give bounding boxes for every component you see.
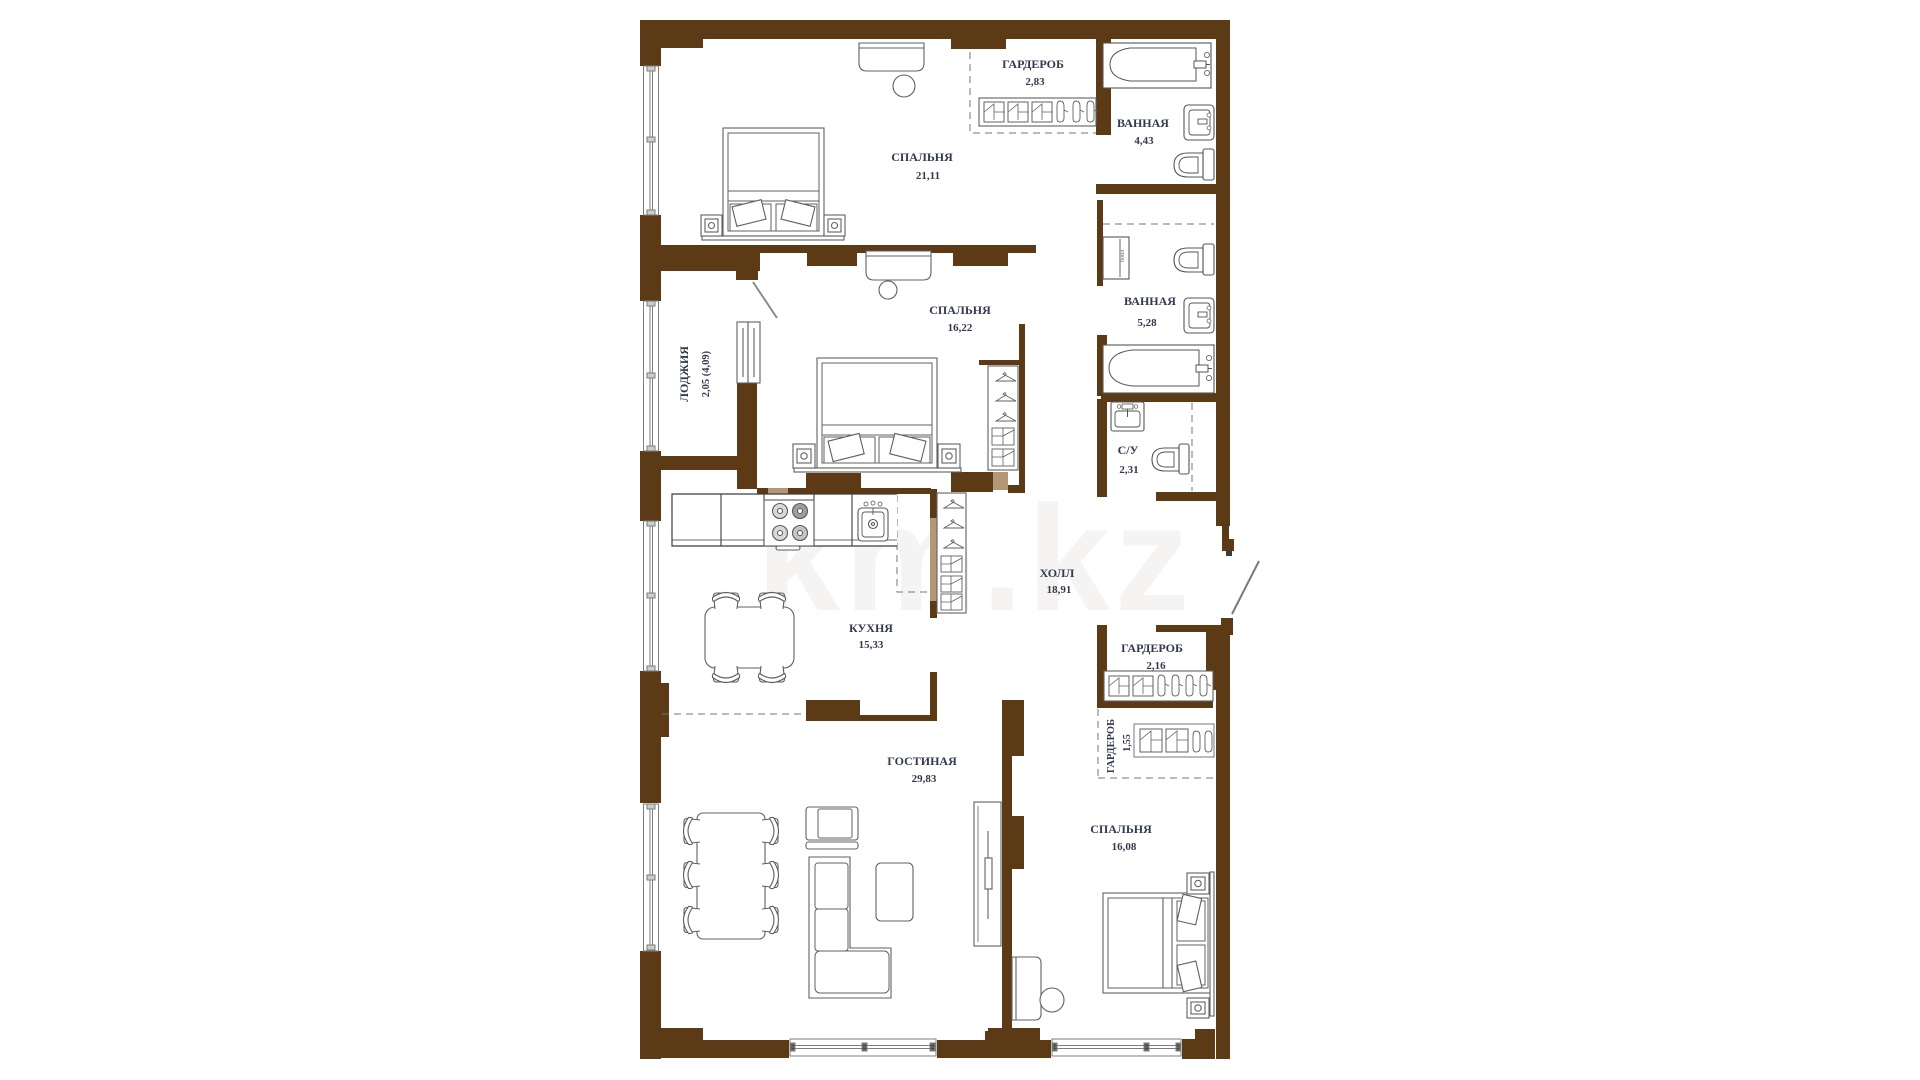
svg-text:16,22: 16,22 — [948, 322, 973, 334]
svg-text:С/У: С/У — [1118, 443, 1139, 457]
svg-text:16,08: 16,08 — [1112, 841, 1137, 853]
svg-text:ЛОДЖИЯ: ЛОДЖИЯ — [677, 346, 691, 402]
svg-text:ВАННАЯ: ВАННАЯ — [1124, 294, 1176, 308]
svg-text:1,55: 1,55 — [1122, 734, 1133, 752]
svg-text:5,28: 5,28 — [1137, 317, 1157, 329]
svg-text:4,43: 4,43 — [1134, 135, 1154, 147]
svg-text:ГАРДЕРОБ: ГАРДЕРОБ — [1002, 57, 1064, 71]
svg-text:КУХНЯ: КУХНЯ — [849, 621, 893, 635]
svg-text:ГОСТИНАЯ: ГОСТИНАЯ — [887, 754, 957, 768]
svg-text:СПАЛЬНЯ: СПАЛЬНЯ — [929, 303, 991, 317]
svg-text:2,31: 2,31 — [1119, 464, 1138, 476]
svg-text:15,33: 15,33 — [859, 639, 884, 651]
svg-text:2,05 (4,09): 2,05 (4,09) — [701, 350, 712, 397]
svg-text:ВАННАЯ: ВАННАЯ — [1117, 116, 1169, 130]
svg-text:ГАРДЕРОБ: ГАРДЕРОБ — [1121, 641, 1183, 655]
svg-text:ХОЛЛ: ХОЛЛ — [1040, 566, 1075, 580]
svg-text:СПАЛЬНЯ: СПАЛЬНЯ — [1090, 822, 1152, 836]
svg-text:2,83: 2,83 — [1025, 76, 1045, 88]
svg-text:боил: боил — [1119, 250, 1126, 262]
svg-text:СПАЛЬНЯ: СПАЛЬНЯ — [891, 150, 953, 164]
svg-text:ГАРДЕРОБ: ГАРДЕРОБ — [1106, 719, 1117, 773]
svg-text:21,11: 21,11 — [916, 170, 940, 182]
svg-text:2,16: 2,16 — [1146, 660, 1166, 672]
svg-text:18,91: 18,91 — [1047, 584, 1072, 596]
svg-text:29,83: 29,83 — [912, 773, 937, 785]
